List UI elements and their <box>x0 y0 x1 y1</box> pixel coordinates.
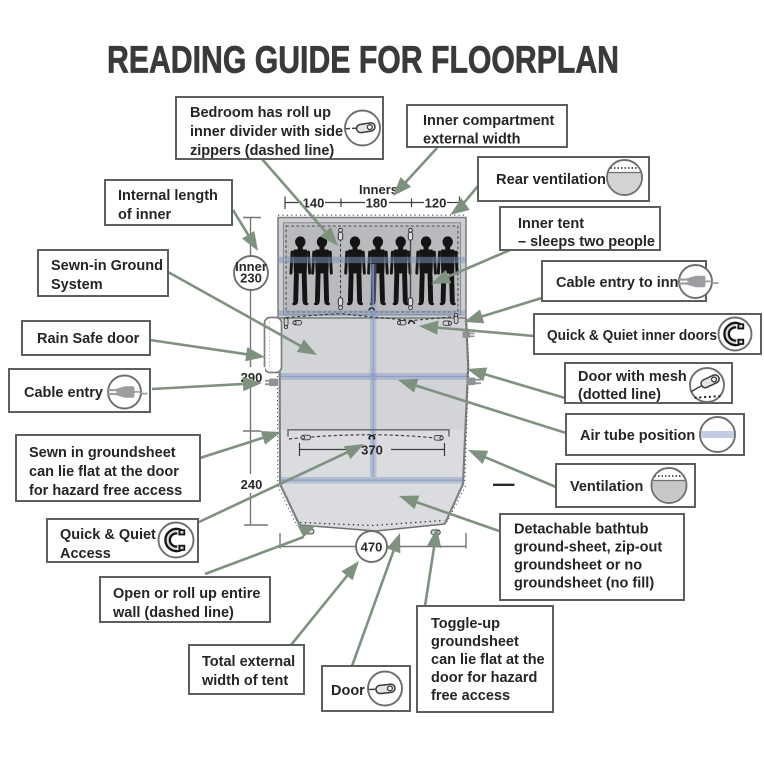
svg-text:Total external: Total external <box>202 654 295 670</box>
svg-text:Rain Safe door: Rain Safe door <box>37 331 140 347</box>
svg-text:Quick & Quiet: Quick & Quiet <box>60 527 156 543</box>
svg-text:Cable entry to inn: Cable entry to inn <box>556 275 678 291</box>
svg-text:470: 470 <box>361 540 383 555</box>
svg-text:180: 180 <box>366 196 388 211</box>
svg-text:Access: Access <box>60 546 111 562</box>
svg-text:Ventilation: Ventilation <box>570 479 643 495</box>
svg-text:Internal length: Internal length <box>118 188 218 204</box>
svg-text:groundsheet: groundsheet <box>431 634 519 650</box>
svg-text:370: 370 <box>361 443 383 458</box>
svg-text:Inner tent: Inner tent <box>518 216 584 232</box>
svg-text:width of tent: width of tent <box>201 673 288 689</box>
svg-text:Bedroom has roll up: Bedroom has roll up <box>190 105 331 121</box>
svg-text:Quick & Quiet inner doors: Quick & Quiet inner doors <box>547 328 717 344</box>
svg-text:Sewn in groundsheet: Sewn in groundsheet <box>29 445 176 461</box>
svg-text:Inner compartment: Inner compartment <box>423 113 554 129</box>
svg-text:zippers (dashed line): zippers (dashed line) <box>190 143 334 159</box>
svg-text:ground-sheet, zip-out: ground-sheet, zip-out <box>514 540 662 556</box>
svg-text:(dotted line): (dotted line) <box>578 387 661 403</box>
svg-text:Detachable bathtub: Detachable bathtub <box>514 522 649 538</box>
svg-text:groundsheet (no fill): groundsheet (no fill) <box>514 576 654 592</box>
svg-text:230: 230 <box>240 271 262 286</box>
svg-text:Sewn-in Ground: Sewn-in Ground <box>51 258 163 274</box>
svg-text:Cable entry: Cable entry <box>24 385 103 401</box>
svg-text:inner divider with side: inner divider with side <box>190 124 343 140</box>
svg-text:Air tube position: Air tube position <box>580 428 695 444</box>
svg-text:groundsheet or no: groundsheet or no <box>514 558 642 574</box>
svg-text:Toggle-up: Toggle-up <box>431 616 500 632</box>
svg-text:can lie flat at the door: can lie flat at the door <box>29 464 179 480</box>
svg-text:Open or roll up entire: Open or roll up entire <box>113 586 260 602</box>
svg-text:READING GUIDE FOR FLOORPLAN: READING GUIDE FOR FLOORPLAN <box>107 40 619 82</box>
svg-text:System: System <box>51 277 103 293</box>
svg-text:external width: external width <box>423 132 521 148</box>
svg-text:Door: Door <box>331 683 365 699</box>
svg-text:wall (dashed line): wall (dashed line) <box>112 605 234 621</box>
svg-text:of inner: of inner <box>118 207 172 223</box>
svg-text:– sleeps two people: – sleeps two people <box>518 234 655 250</box>
svg-text:can lie flat at the: can lie flat at the <box>431 652 545 668</box>
svg-text:door for hazard: door for hazard <box>431 670 537 686</box>
svg-text:240: 240 <box>241 477 263 492</box>
svg-text:120: 120 <box>425 196 447 211</box>
svg-text:free access: free access <box>431 688 510 704</box>
svg-text:for hazard free access: for hazard free access <box>29 483 182 499</box>
svg-text:Door with mesh: Door with mesh <box>578 369 687 385</box>
svg-text:Rear ventilation: Rear ventilation <box>496 172 606 188</box>
